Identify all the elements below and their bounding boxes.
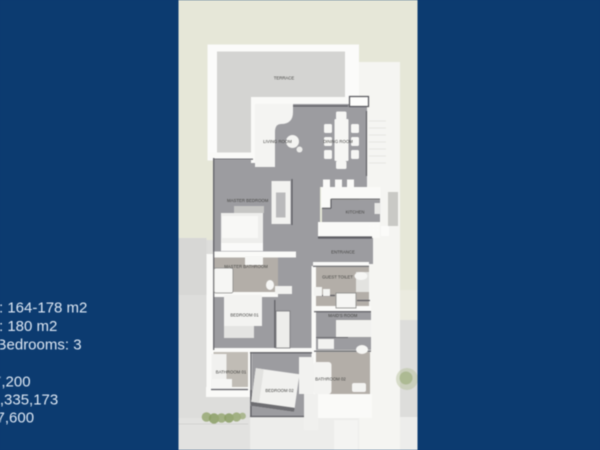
svg-text:LIVING ROOM: LIVING ROOM <box>263 139 292 144</box>
svg-text:1,335,173: 1,335,173 <box>0 392 58 409</box>
svg-text:MAID'S ROOM: MAID'S ROOM <box>328 313 357 318</box>
svg-text:7,200: 7,200 <box>0 374 31 391</box>
svg-text:: 164-178 m2: : 164-178 m2 <box>0 300 87 317</box>
svg-text:KITCHEN: KITCHEN <box>346 210 365 215</box>
svg-text:MASTER BATHROOM: MASTER BATHROOM <box>224 264 268 269</box>
svg-text:7,600: 7,600 <box>0 410 34 427</box>
svg-text:DINING ROOM: DINING ROOM <box>323 139 353 144</box>
svg-text:: 180 m2: : 180 m2 <box>0 318 57 335</box>
svg-text:GUEST TOILET: GUEST TOILET <box>322 275 353 280</box>
svg-text:TERRACE: TERRACE <box>274 76 295 81</box>
svg-text:BATHROOM 01: BATHROOM 01 <box>216 370 247 375</box>
svg-text:BEDROOM 01: BEDROOM 01 <box>230 313 259 318</box>
svg-text:Bedrooms: 3: Bedrooms: 3 <box>0 337 82 354</box>
svg-text:ENTRANCE: ENTRANCE <box>331 250 355 255</box>
svg-text:BEDROOM 02: BEDROOM 02 <box>265 388 294 393</box>
svg-text:BATHROOM 02: BATHROOM 02 <box>315 377 346 382</box>
svg-text:MASTER BEDROOM: MASTER BEDROOM <box>227 198 269 203</box>
